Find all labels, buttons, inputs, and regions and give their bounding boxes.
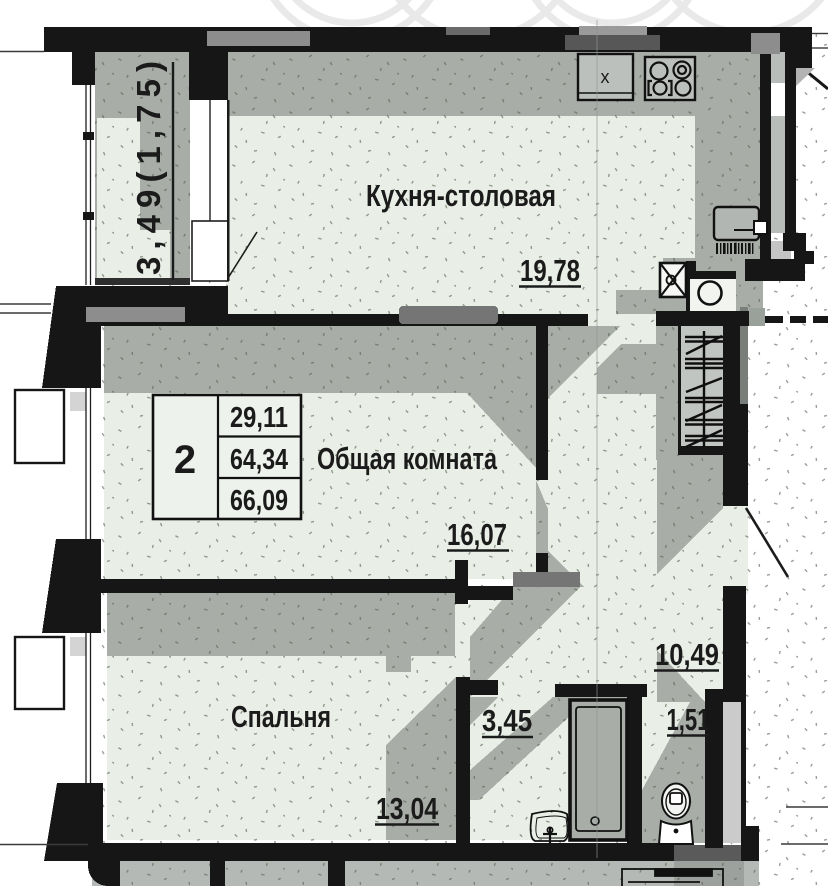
svg-text:64,34: 64,34 (230, 444, 288, 476)
svg-text:10,49: 10,49 (655, 637, 719, 672)
svg-text:66,09: 66,09 (230, 485, 288, 517)
svg-text:Кухня-столовая: Кухня-столовая (366, 178, 556, 213)
svg-text:29,11: 29,11 (230, 402, 288, 434)
svg-text:Общая комната: Общая комната (317, 441, 498, 476)
svg-text:x: x (601, 67, 610, 87)
svg-text:1,51: 1,51 (667, 702, 710, 737)
svg-text:3,45: 3,45 (482, 703, 532, 738)
svg-text:13,04: 13,04 (376, 791, 439, 826)
svg-text:16,07: 16,07 (447, 517, 507, 552)
svg-text:2: 2 (174, 438, 196, 482)
svg-text:Спальня: Спальня (231, 699, 331, 734)
svg-text:19,78: 19,78 (520, 253, 580, 288)
